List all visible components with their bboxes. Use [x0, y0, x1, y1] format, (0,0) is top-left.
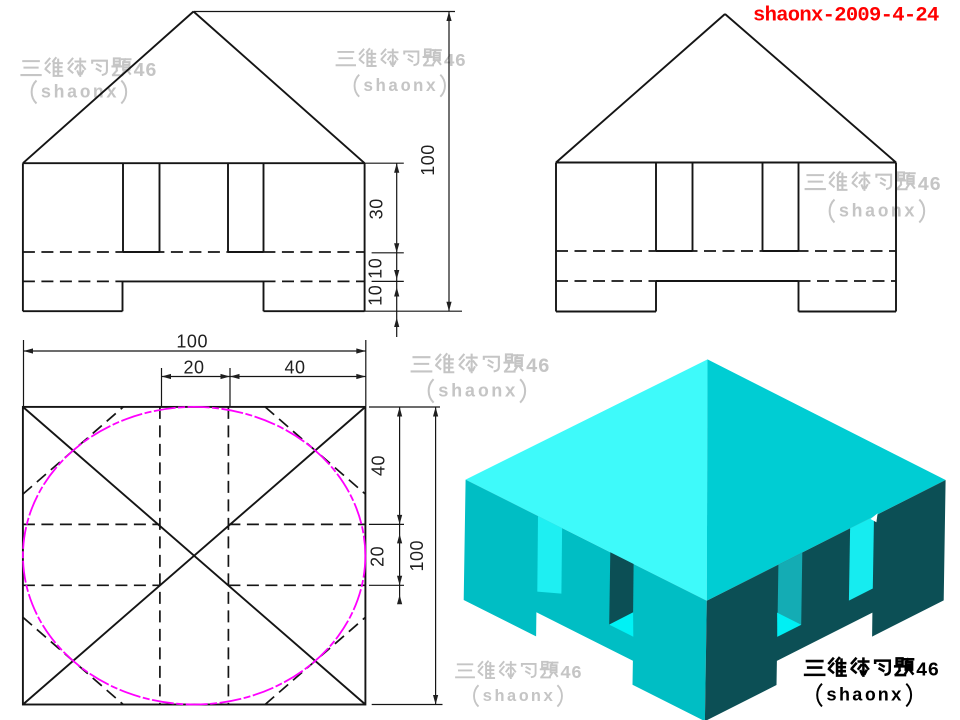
svg-text:shaonx: shaonx	[41, 84, 120, 104]
svg-text:20: 20	[368, 546, 388, 567]
svg-text:shaonx: shaonx	[363, 78, 438, 97]
svg-text:46: 46	[444, 51, 466, 72]
svg-text:shaonx: shaonx	[826, 687, 904, 707]
svg-text:46: 46	[916, 660, 939, 682]
svg-text:shaonx: shaonx	[482, 688, 555, 707]
svg-text:46: 46	[526, 355, 550, 378]
svg-text:shaonx: shaonx	[839, 203, 918, 223]
svg-text:100: 100	[176, 332, 208, 352]
svg-text:40: 40	[369, 455, 389, 476]
svg-text:100: 100	[418, 144, 438, 176]
svg-text:20: 20	[183, 358, 204, 378]
svg-text:shaonx-2009-4-24: shaonx-2009-4-24	[753, 5, 939, 28]
svg-text:46: 46	[918, 174, 941, 196]
svg-text:30: 30	[367, 198, 387, 219]
svg-text:10: 10	[366, 285, 386, 306]
svg-text:46: 46	[560, 664, 582, 684]
svg-text:shaonx: shaonx	[438, 382, 518, 403]
svg-text:40: 40	[284, 358, 305, 378]
svg-text:100: 100	[407, 540, 427, 572]
svg-text:10: 10	[366, 258, 386, 279]
